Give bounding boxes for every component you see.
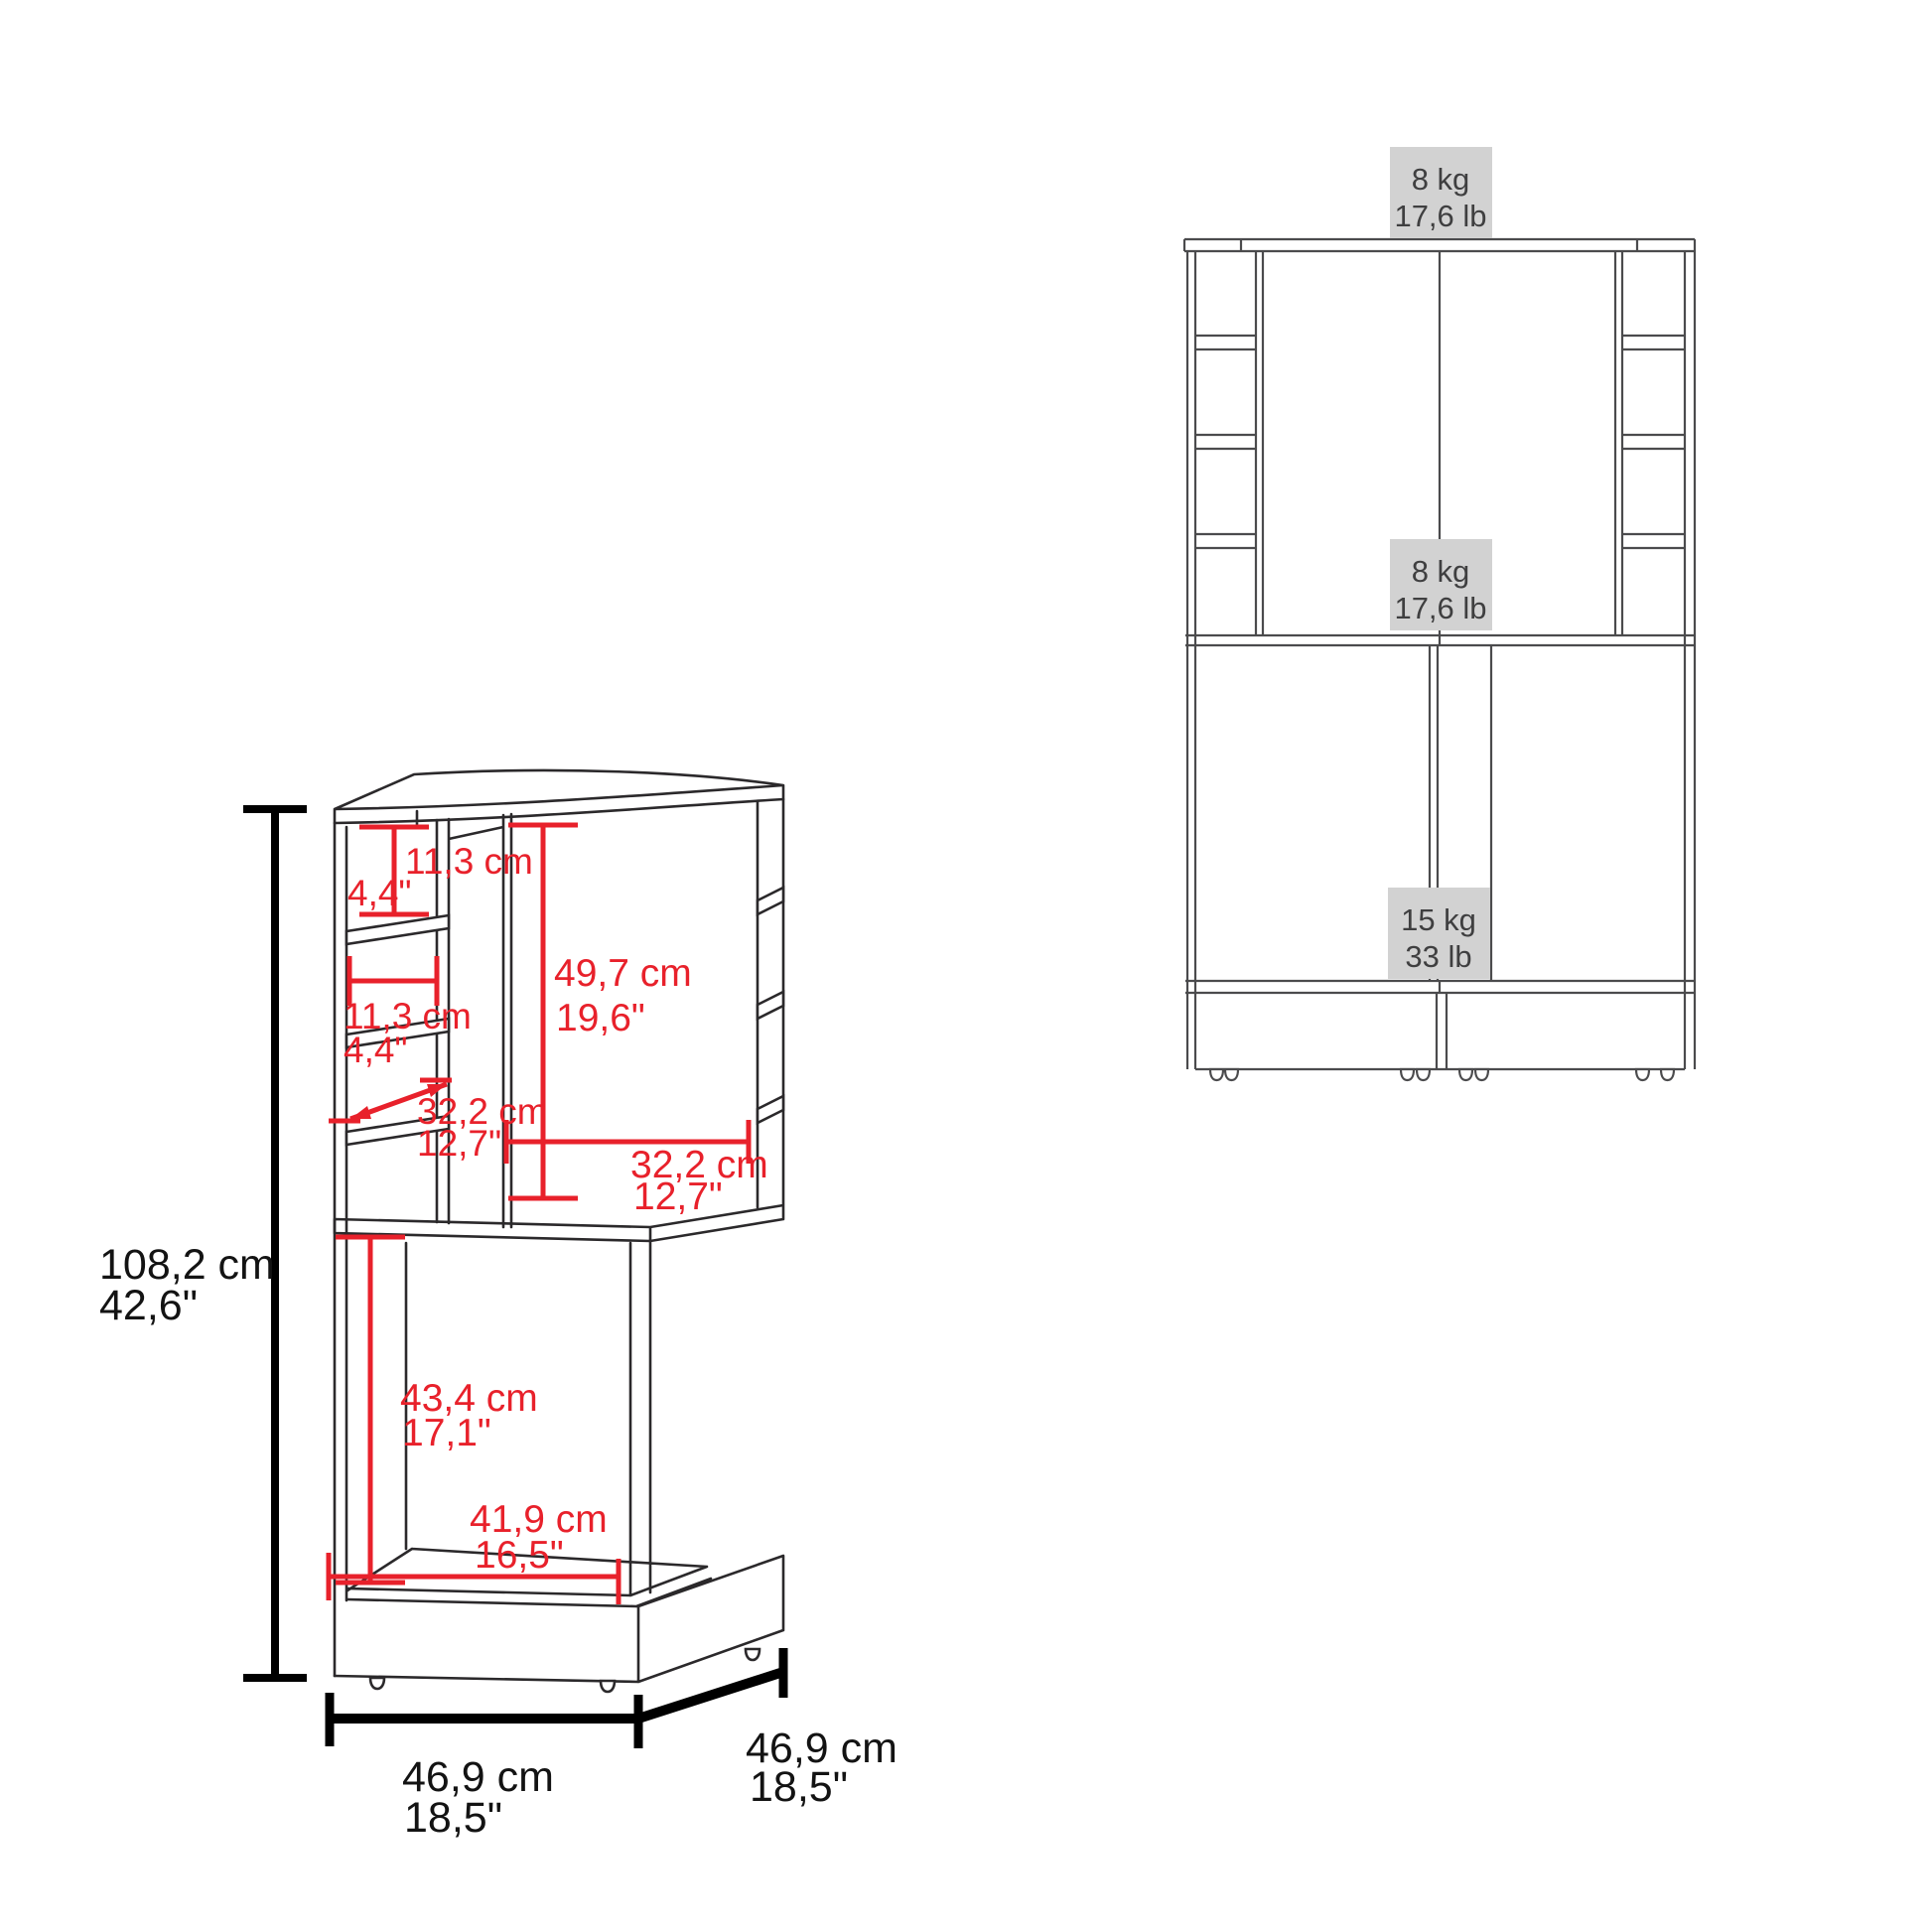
fv-mid-shelf [1185, 635, 1695, 645]
dim-cubby-height-cm: 11,3 cm [405, 841, 533, 882]
fv-top-panel [1184, 239, 1695, 251]
dim-shelf-depth-inch: 12,7" [417, 1123, 501, 1164]
dim-height: 108,2 cm 42,6" [99, 809, 307, 1678]
weight-badge-top-kg: 8 kg [1412, 162, 1470, 197]
front-view: 8 kg 17,6 lb 8 kg 17,6 lb 15 kg 33 lb [1184, 147, 1695, 1080]
dim-depth-line [638, 1672, 783, 1719]
dim-height-inch: 42,6" [99, 1282, 198, 1329]
dim-base-width-inch: 16,5" [475, 1534, 564, 1577]
weight-badge-top: 8 kg 17,6 lb [1390, 147, 1492, 238]
weight-badge-middle-kg: 8 kg [1412, 554, 1470, 589]
furniture-dimension-diagram: 108,2 cm 42,6" 46,9 cm 18,5" 46,9 cm 18,… [0, 0, 1932, 1932]
dim-shelf-depth: 32,2 cm 12,7" [329, 1080, 548, 1164]
dim-open-height-cm: 49,7 cm [554, 952, 692, 995]
dim-cubby-height: 11,3 cm 4,4" [347, 827, 533, 914]
weight-badge-bottom: 15 kg 33 lb [1388, 888, 1490, 979]
cabinet-feet [370, 1649, 759, 1692]
weight-badge-bottom-lb: 33 lb [1405, 939, 1471, 974]
dim-shelf-depth-arrowhead-down [350, 1106, 371, 1119]
dim-depth-inch: 18,5" [750, 1763, 848, 1811]
dim-lower-height-inch: 17,1" [402, 1412, 491, 1454]
fv-bottom-shelf [1185, 981, 1695, 993]
dim-cubby-width: 11,3 cm 4,4" [344, 956, 472, 1070]
dim-width-inch: 18,5" [404, 1794, 502, 1842]
weight-badge-top-lb: 17,6 lb [1394, 199, 1486, 233]
weight-badge-middle: 8 kg 17,6 lb [1390, 539, 1492, 630]
fv-feet [1210, 1069, 1674, 1080]
fv-plinth [1195, 993, 1685, 1069]
cabinet-left-wall [335, 823, 346, 1676]
dim-cubby-width-inch: 4,4" [344, 1030, 408, 1070]
dim-open-width-inch: 12,7" [633, 1175, 723, 1218]
perspective-view: 108,2 cm 42,6" 46,9 cm 18,5" 46,9 cm 18,… [99, 770, 897, 1842]
dim-depth: 46,9 cm 18,5" [638, 1648, 897, 1811]
dim-width: 46,9 cm 18,5" [330, 1693, 638, 1842]
weight-badge-middle-lb: 17,6 lb [1394, 591, 1486, 625]
dim-open-width: 32,2 cm 12,7" [506, 1120, 768, 1218]
dim-cubby-height-inch: 4,4" [347, 873, 412, 913]
dim-open-height-inch: 19,6" [556, 997, 645, 1039]
weight-badge-bottom-kg: 15 kg [1401, 902, 1476, 937]
cabinet-right-column-shelves [758, 888, 783, 1123]
cabinet-top-panel [335, 770, 783, 825]
